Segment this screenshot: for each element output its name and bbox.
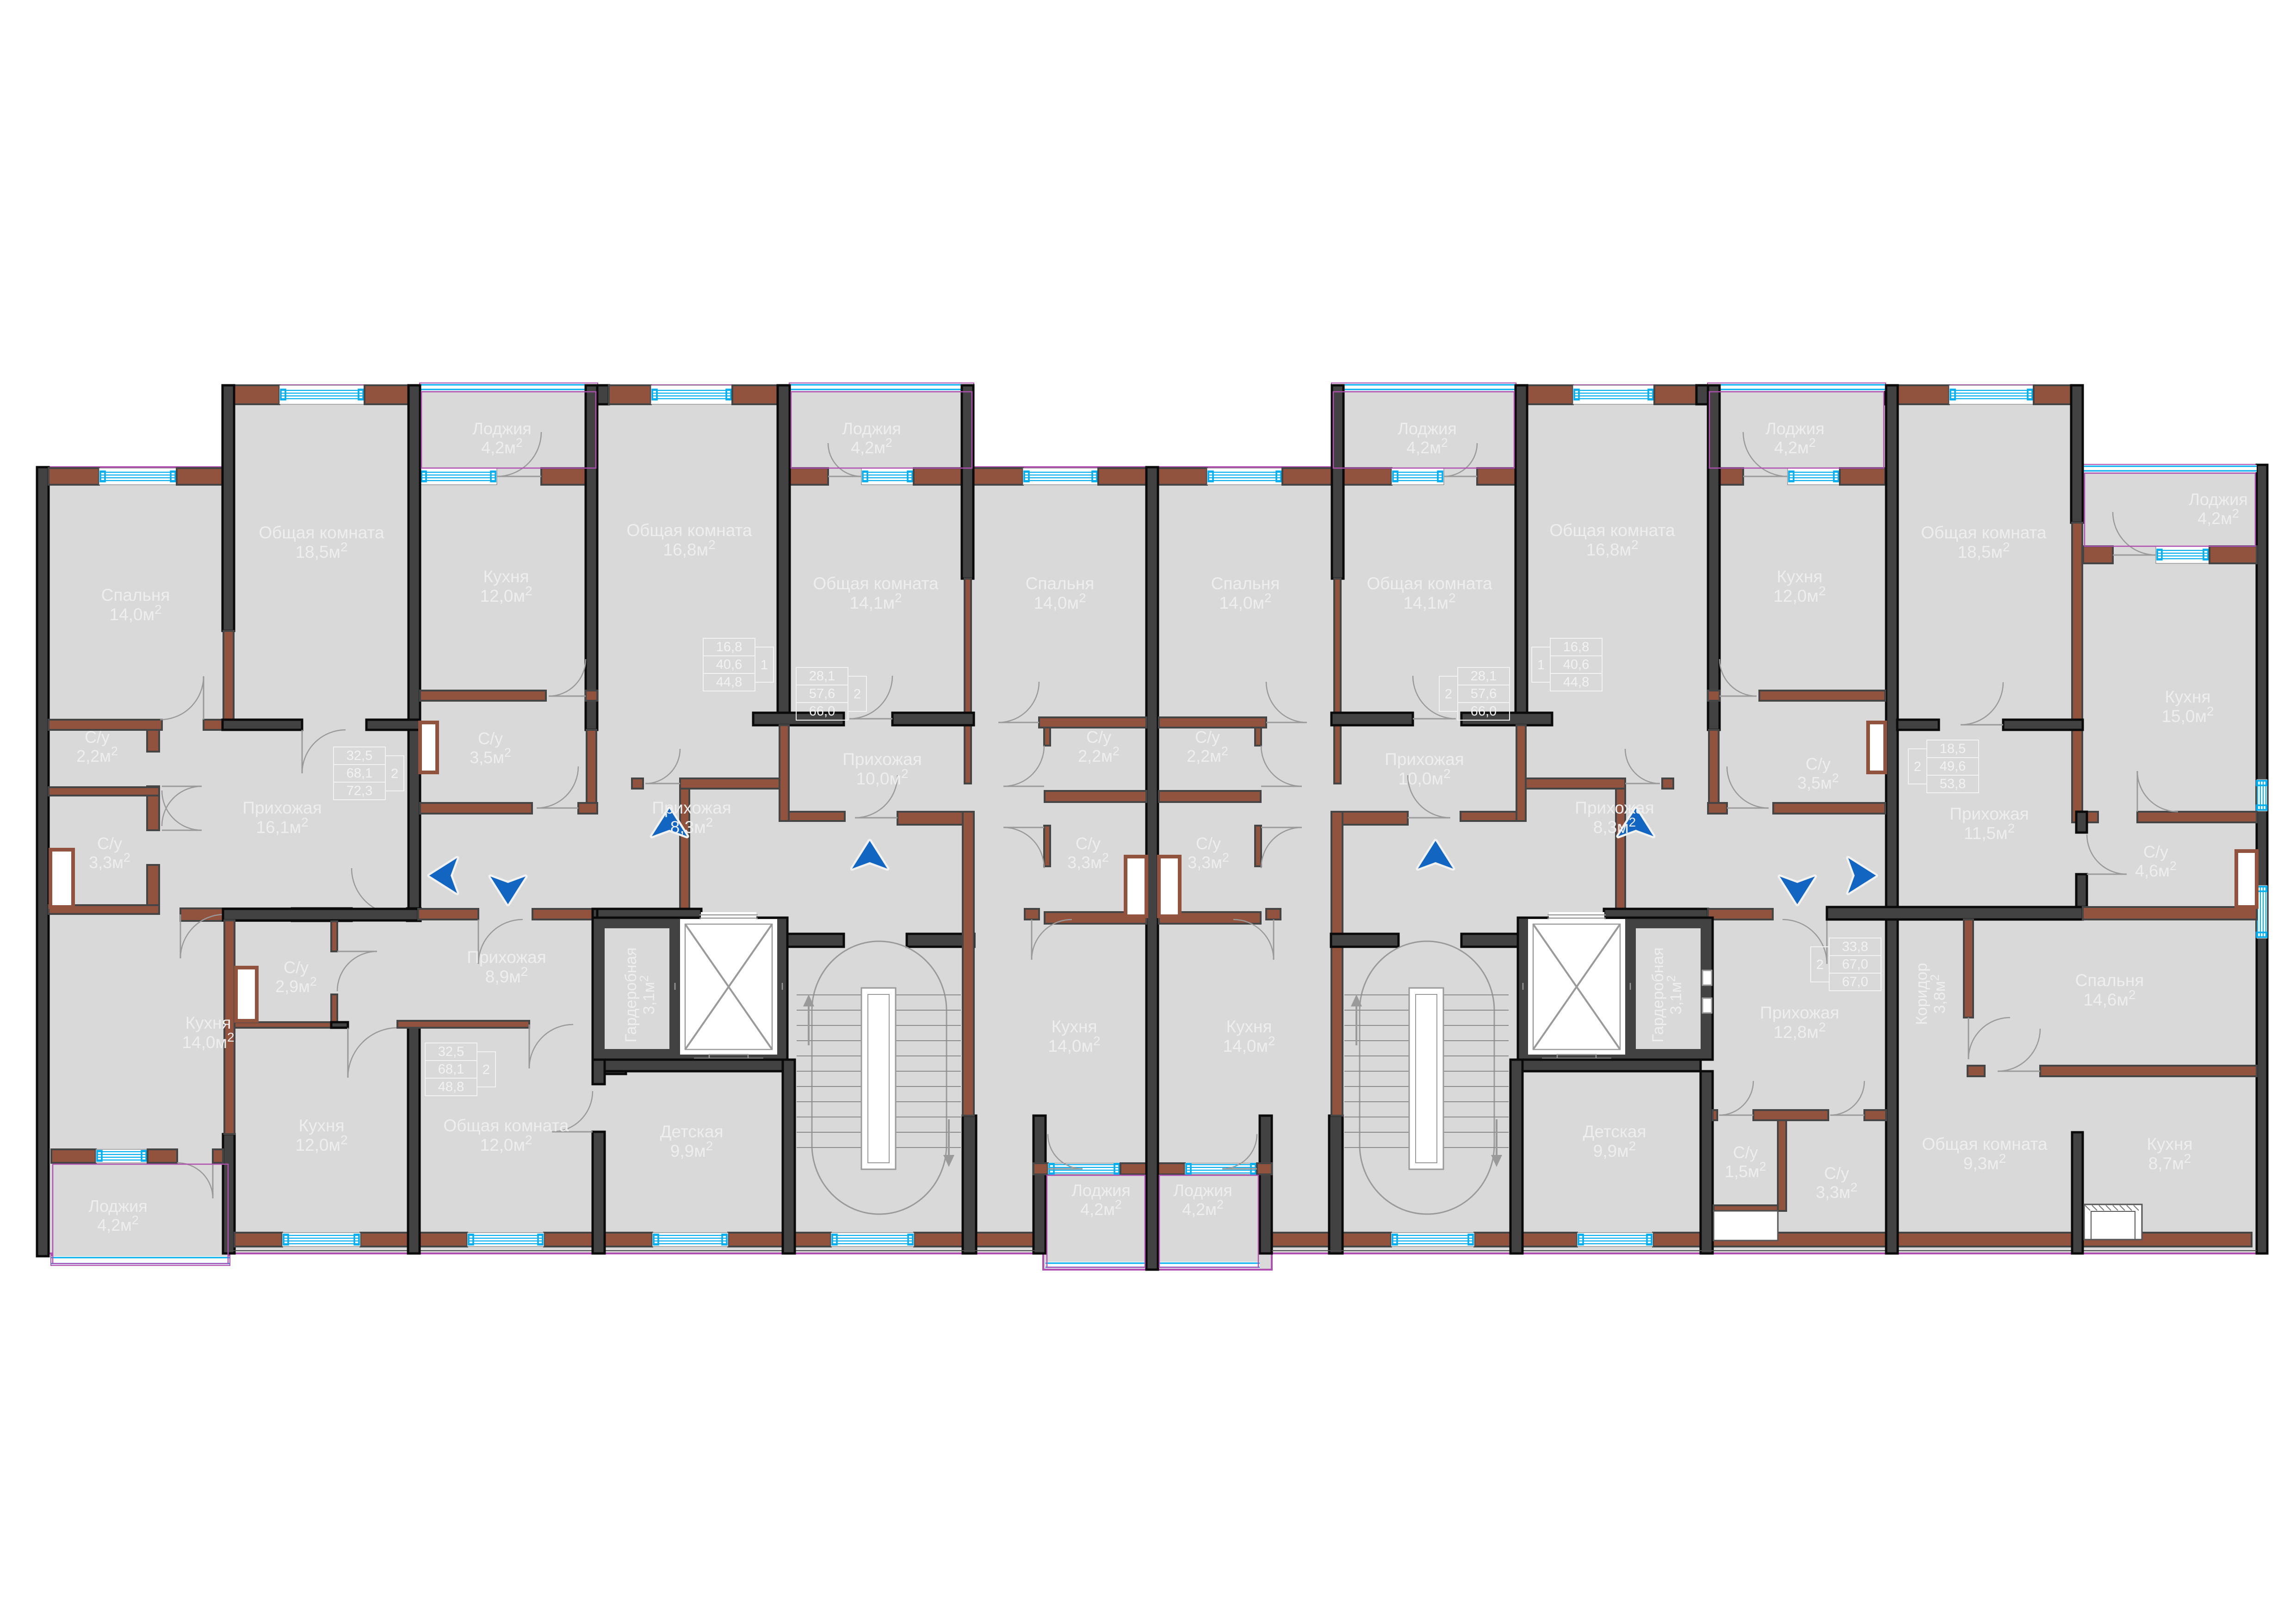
svg-text:2: 2: [483, 1062, 490, 1077]
svg-text:68,1: 68,1: [347, 766, 372, 781]
svg-text:1: 1: [761, 658, 768, 673]
svg-text:2: 2: [391, 766, 398, 781]
svg-text:57,6: 57,6: [809, 686, 835, 701]
svg-text:Кухня14,0м2: Кухня14,0м2: [1048, 1017, 1100, 1055]
svg-text:2: 2: [854, 687, 861, 702]
svg-text:48,8: 48,8: [438, 1080, 464, 1094]
svg-text:Кухня14,0м2: Кухня14,0м2: [1223, 1017, 1275, 1055]
svg-text:72,3: 72,3: [347, 784, 372, 798]
svg-text:53,8: 53,8: [1940, 777, 1966, 791]
svg-text:18,5: 18,5: [1940, 741, 1966, 756]
svg-text:40,6: 40,6: [716, 657, 742, 672]
svg-text:57,6: 57,6: [1471, 686, 1497, 701]
svg-text:67,0: 67,0: [1842, 975, 1868, 989]
svg-text:32,5: 32,5: [438, 1044, 464, 1059]
svg-text:28,1: 28,1: [809, 669, 835, 684]
svg-text:66,0: 66,0: [809, 704, 835, 719]
svg-text:2: 2: [1816, 957, 1824, 972]
svg-text:16,8: 16,8: [1563, 640, 1589, 654]
svg-text:32,5: 32,5: [347, 748, 372, 763]
svg-text:Кухня12,0м2: Кухня12,0м2: [480, 567, 532, 605]
svg-text:44,8: 44,8: [1563, 675, 1589, 690]
svg-text:Кухня12,0м2: Кухня12,0м2: [1773, 567, 1826, 605]
svg-text:2: 2: [1914, 759, 1921, 774]
svg-text:33,8: 33,8: [1842, 939, 1868, 954]
svg-text:40,6: 40,6: [1563, 657, 1589, 672]
svg-text:66,0: 66,0: [1471, 704, 1497, 719]
svg-text:68,1: 68,1: [438, 1062, 464, 1077]
svg-text:49,6: 49,6: [1940, 759, 1966, 774]
svg-text:44,8: 44,8: [716, 675, 742, 690]
svg-text:2: 2: [1445, 687, 1452, 702]
svg-text:16,8: 16,8: [716, 640, 742, 654]
svg-text:67,0: 67,0: [1842, 957, 1868, 972]
svg-text:Кухня15,0м2: Кухня15,0м2: [2161, 687, 2214, 726]
svg-text:1: 1: [1537, 658, 1545, 673]
svg-text:Кухня14,0м2: Кухня14,0м2: [182, 1013, 234, 1052]
svg-text:28,1: 28,1: [1471, 669, 1497, 684]
svg-text:Кухня12,0м2: Кухня12,0м2: [295, 1116, 347, 1154]
